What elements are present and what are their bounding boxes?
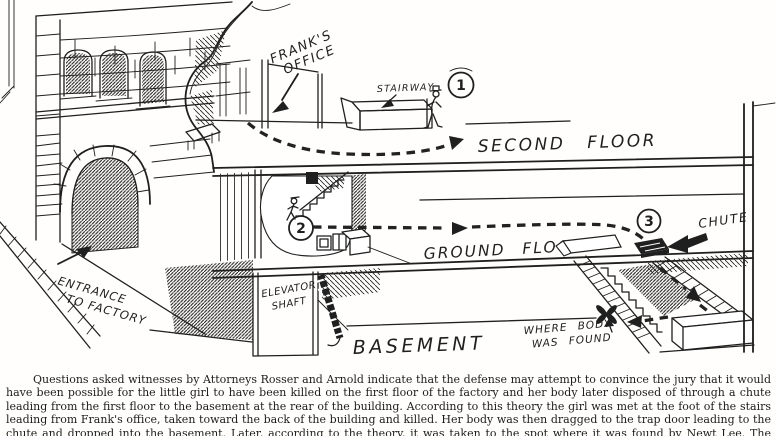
- elevator-shaft: ELEVATOR SHAFT: [253, 272, 320, 356]
- corner-quoins: [36, 16, 60, 242]
- basement-bin: [672, 311, 753, 350]
- route-arrow-1: [449, 136, 464, 150]
- franks-office-label: FRANK'S OFFICE: [268, 28, 340, 113]
- stair-doorway: [306, 172, 318, 184]
- elevator-shaft-label-line2: SHAFT: [271, 296, 308, 313]
- second-floor: STAIRWAY 1 SECOND FLOOR: [196, 68, 753, 176]
- marker-1: 1: [449, 68, 474, 98]
- cutaway-drawing: ENTRANCE TO FACTORY FRANK'S OFFICE: [0, 0, 777, 360]
- route-ground-floor-a: [313, 227, 446, 228]
- chute-label-text: CHUTE: [697, 209, 749, 231]
- street-pole: [0, 0, 14, 103]
- stairway-label: STAIRWAY: [377, 82, 435, 108]
- second-floor-slab: [213, 157, 753, 176]
- basement: ELEVATOR SHAFT BASEMENT: [253, 253, 754, 359]
- shaft-front-wall: [255, 170, 261, 258]
- marker-3: 3: [638, 210, 661, 233]
- second-floor-label: SECOND FLOOR: [477, 131, 657, 157]
- foundation-shading: [165, 260, 253, 340]
- news-caption: Questions asked witnesses by Attorneys R…: [6, 373, 771, 436]
- right-wall: [744, 102, 775, 352]
- franks-office-arrow: [272, 101, 289, 113]
- marker-1-number: 1: [456, 78, 466, 94]
- body-found-label: WHERE BODY WAS FOUND: [523, 318, 614, 352]
- marker-2-number: 2: [296, 221, 306, 237]
- facade-windows: [60, 50, 170, 109]
- cornice-band: [36, 96, 214, 119]
- second-floor-walkline: [196, 120, 570, 124]
- torn-edge: [185, 2, 290, 172]
- torn-edge-shading: [194, 30, 226, 88]
- facade-top-edge: [36, 2, 232, 16]
- stairway-label-text: STAIRWAY: [377, 82, 435, 95]
- route-arrow-2: [452, 222, 468, 235]
- basement-label: BASEMENT: [352, 332, 485, 359]
- entrance-label: ENTRANCE TO FACTORY: [52, 246, 152, 328]
- route-basement: [642, 317, 668, 321]
- chute-label: CHUTE: [667, 209, 749, 253]
- entrance-arch: [54, 145, 150, 253]
- elevator-shaft-label-line1: ELEVATOR: [261, 280, 317, 300]
- newspaper-factory-diagram: ENTRANCE TO FACTORY FRANK'S OFFICE: [0, 0, 777, 436]
- front-wall-shading: [214, 172, 254, 262]
- ground-floor-backline: [420, 194, 744, 200]
- marker-3-number: 3: [644, 214, 654, 230]
- office-window: [216, 60, 250, 116]
